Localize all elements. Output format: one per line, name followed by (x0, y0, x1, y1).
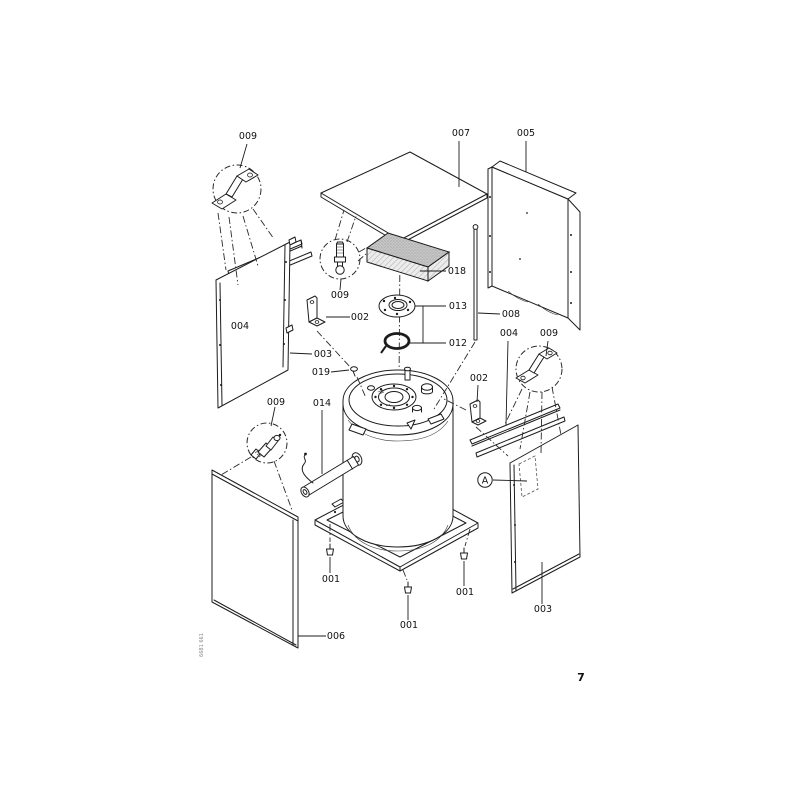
rear-panel-right (510, 425, 580, 604)
callout-002-left: 002 (351, 312, 369, 323)
callout-012: 012 (449, 338, 467, 349)
callout-009-stud: 009 (331, 290, 349, 301)
callout-005: 005 (517, 128, 535, 139)
callout-003-left: 003 (314, 349, 332, 360)
leader-004-right (506, 341, 508, 425)
callout-007: 007 (452, 128, 470, 139)
diagram-canvas: A (0, 0, 800, 800)
callout-013: 013 (449, 301, 467, 312)
leader-009-stud (340, 279, 341, 290)
callout-002-right: 002 (470, 373, 488, 384)
side-panel-right (488, 141, 580, 330)
gasket-ring (381, 334, 446, 354)
callout-018: 018 (448, 266, 466, 277)
top-cover-panel (321, 141, 487, 244)
screw-001-right (461, 529, 471, 586)
screw-019 (331, 367, 357, 376)
detail-circle-bracket-right (504, 341, 562, 454)
screw-001-center (403, 570, 412, 620)
callout-009-right: 009 (540, 328, 558, 339)
storage-tank (343, 367, 453, 551)
callout-004-left: 004 (231, 321, 249, 332)
leader-003-left (290, 353, 312, 354)
callout-001-left: 001 (322, 574, 340, 585)
leader-008 (478, 313, 500, 314)
callout-001-right: 001 (456, 587, 474, 598)
detail-marker-a-label: A (482, 476, 489, 487)
leader-002-right (477, 385, 478, 402)
callout-009-top-left: 009 (239, 131, 257, 142)
leader-009-top-left (240, 144, 247, 168)
detail-circle-stud (320, 210, 366, 290)
callout-003-right: 003 (534, 604, 552, 615)
callout-009-bottom-left: 009 (267, 397, 285, 408)
callout-006: 006 (327, 631, 345, 642)
callout-008: 008 (502, 309, 520, 320)
leader-009-bottom-left (271, 407, 275, 426)
exploded-parts-diagram-page: A (0, 0, 800, 800)
insulation-block (367, 233, 449, 281)
callout-019: 019 (312, 367, 330, 378)
leader-013 (415, 306, 446, 343)
callout-014: 014 (313, 398, 331, 409)
leader-019 (331, 370, 349, 372)
doc-code: 6681 661 (199, 633, 205, 657)
front-panel (212, 470, 326, 648)
page-number: 7 (577, 671, 585, 684)
callout-004-right: 004 (500, 328, 518, 339)
callout-001-center: 001 (400, 620, 418, 631)
sensor-cable (302, 455, 313, 483)
